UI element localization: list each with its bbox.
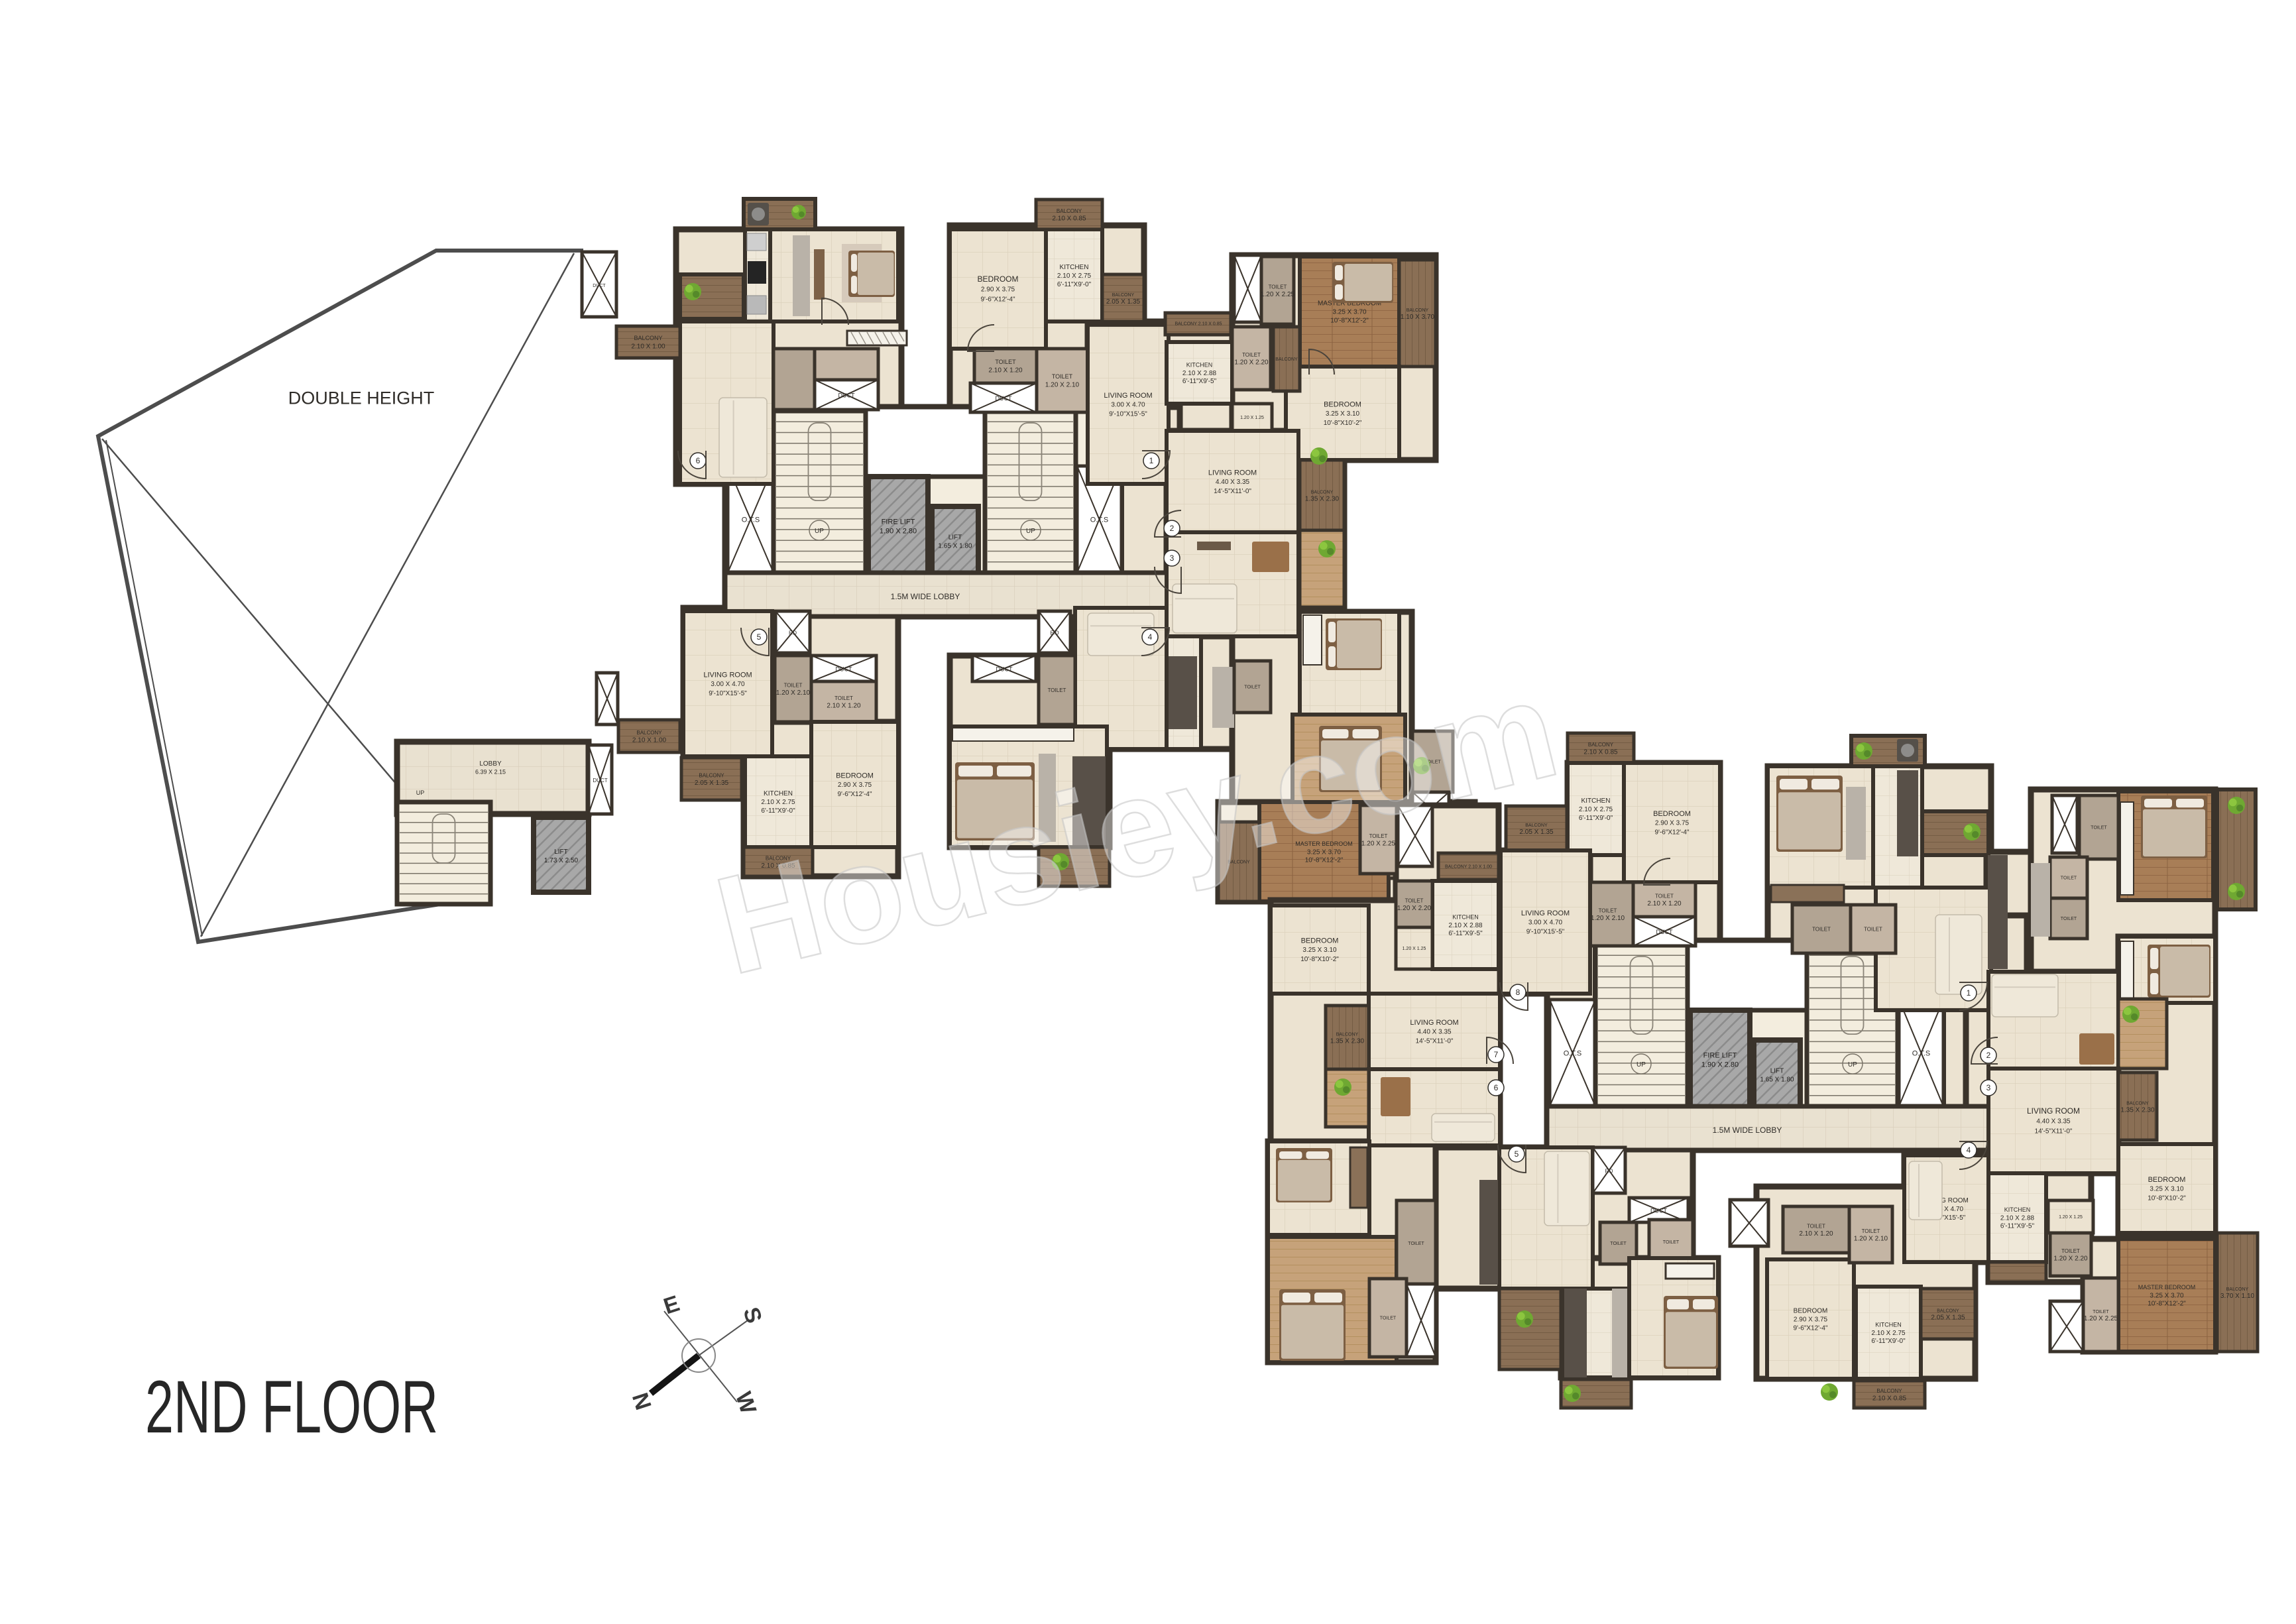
svg-text:14'-5"X11'-0": 14'-5"X11'-0" xyxy=(2035,1128,2073,1135)
svg-text:1.35 X 2.30: 1.35 X 2.30 xyxy=(2120,1107,2155,1114)
svg-text:KITCHEN: KITCHEN xyxy=(1060,264,1089,271)
svg-text:BALCONY: BALCONY xyxy=(1336,1032,1359,1037)
svg-text:LIFT: LIFT xyxy=(554,848,568,856)
svg-text:LIVING ROOM: LIVING ROOM xyxy=(1521,909,1570,917)
svg-text:TOILET: TOILET xyxy=(1380,1316,1397,1320)
svg-text:1.65 X 1.80: 1.65 X 1.80 xyxy=(1760,1076,1794,1084)
svg-text:TOILET: TOILET xyxy=(1862,1228,1880,1234)
svg-text:2.05 X 1.35: 2.05 X 1.35 xyxy=(1106,298,1141,306)
svg-text:TOILET: TOILET xyxy=(1655,893,1674,899)
svg-text:BALCONY: BALCONY xyxy=(1275,357,1298,362)
svg-text:1.20 X 2.25: 1.20 X 2.25 xyxy=(2084,1315,2118,1322)
svg-text:BEDROOM: BEDROOM xyxy=(2148,1176,2186,1184)
svg-text:14'-5"X11'-0": 14'-5"X11'-0" xyxy=(1214,488,1251,495)
svg-text:1.10 X 3.70: 1.10 X 3.70 xyxy=(1401,314,1435,321)
svg-text:TOILET: TOILET xyxy=(1244,685,1261,689)
svg-text:3.25 X 3.70: 3.25 X 3.70 xyxy=(2150,1293,2184,1300)
svg-text:2.90 X 3.75: 2.90 X 3.75 xyxy=(981,286,1015,294)
svg-text:2.10 X 1.00: 2.10 X 1.00 xyxy=(632,737,667,744)
svg-text:BEDROOM: BEDROOM xyxy=(1301,937,1339,945)
svg-text:BALCONY: BALCONY xyxy=(634,335,662,341)
svg-text:BEDROOM: BEDROOM xyxy=(1324,400,1361,408)
svg-text:BALCONY: BALCONY xyxy=(1525,823,1548,828)
svg-text:4: 4 xyxy=(1148,632,1153,642)
svg-text:2.90 X 3.75: 2.90 X 3.75 xyxy=(1794,1316,1828,1324)
svg-text:TOILET: TOILET xyxy=(1812,926,1831,932)
svg-text:14'-5"X11'-0": 14'-5"X11'-0" xyxy=(1416,1038,1454,1045)
svg-text:FIRE LIFT: FIRE LIFT xyxy=(1703,1052,1737,1060)
svg-text:O.T.S: O.T.S xyxy=(1912,1050,1931,1058)
svg-text:1.20 X 2.20: 1.20 X 2.20 xyxy=(1234,359,1269,367)
svg-text:6'-11"X9'-0": 6'-11"X9'-0" xyxy=(761,807,795,815)
svg-text:BALCONY: BALCONY xyxy=(1057,208,1082,214)
svg-text:TOILET: TOILET xyxy=(1048,687,1066,693)
svg-text:6: 6 xyxy=(696,456,701,465)
svg-text:8: 8 xyxy=(1516,988,1521,997)
svg-text:BALCONY: BALCONY xyxy=(1937,1308,1959,1313)
svg-text:4.40 X 3.35: 4.40 X 3.35 xyxy=(1216,479,1250,486)
svg-text:UP: UP xyxy=(1026,528,1035,535)
svg-text:F.D: F.D xyxy=(789,630,797,636)
svg-text:TOILET: TOILET xyxy=(2061,917,2077,921)
svg-text:DUCT: DUCT xyxy=(836,666,852,673)
svg-text:TOILET: TOILET xyxy=(2061,876,2077,880)
svg-text:7: 7 xyxy=(1494,1050,1499,1059)
svg-text:LIVING ROOM: LIVING ROOM xyxy=(1104,392,1152,400)
svg-text:9'-6"X12'-4": 9'-6"X12'-4" xyxy=(837,791,872,798)
svg-text:1.20 X 2.10: 1.20 X 2.10 xyxy=(776,689,811,697)
svg-text:2.10 X 2.75: 2.10 X 2.75 xyxy=(761,799,795,806)
svg-text:1.20 X 1.25: 1.20 X 1.25 xyxy=(1403,947,1426,951)
svg-text:UP: UP xyxy=(1636,1061,1646,1069)
svg-text:KITCHEN: KITCHEN xyxy=(2004,1206,2031,1213)
svg-text:2.10 X 1.20: 2.10 X 1.20 xyxy=(827,703,861,710)
svg-text:6'-11"X9'-5": 6'-11"X9'-5" xyxy=(1182,378,1217,385)
svg-text:BEDROOM: BEDROOM xyxy=(977,274,1018,284)
svg-text:1.20 X 1.25: 1.20 X 1.25 xyxy=(2059,1215,2083,1220)
svg-text:2: 2 xyxy=(1986,1051,1991,1060)
svg-text:2.10 X 1.20: 2.10 X 1.20 xyxy=(1799,1230,1833,1238)
svg-text:1.5M WIDE LOBBY: 1.5M WIDE LOBBY xyxy=(891,592,960,601)
svg-text:BEDROOM: BEDROOM xyxy=(1794,1308,1828,1315)
svg-text:6'-11"X9'-5": 6'-11"X9'-5" xyxy=(2000,1223,2035,1230)
svg-text:TOILET: TOILET xyxy=(1610,1242,1627,1246)
svg-text:2.05 X 1.35: 2.05 X 1.35 xyxy=(1931,1314,1965,1322)
svg-text:TOILET: TOILET xyxy=(1052,373,1073,380)
svg-text:3: 3 xyxy=(1170,553,1175,563)
svg-text:KITCHEN: KITCHEN xyxy=(1581,797,1611,805)
svg-text:KITCHEN: KITCHEN xyxy=(764,790,793,797)
svg-text:E.D: E.D xyxy=(1050,630,1059,636)
svg-text:1.35 X 2.30: 1.35 X 2.30 xyxy=(1330,1038,1365,1045)
svg-text:3.25 X 3.10: 3.25 X 3.10 xyxy=(1326,410,1360,418)
svg-text:1.20 X 2.25: 1.20 X 2.25 xyxy=(1261,291,1295,298)
svg-text:1.90 X 2.80: 1.90 X 2.80 xyxy=(1701,1061,1739,1069)
svg-text:KITCHEN: KITCHEN xyxy=(1186,362,1213,369)
svg-text:BALCONY: BALCONY xyxy=(1588,742,1614,748)
svg-text:LIVING ROOM: LIVING ROOM xyxy=(1410,1019,1458,1027)
svg-text:3.70 X 1.10: 3.70 X 1.10 xyxy=(2220,1293,2255,1300)
svg-text:LIVING ROOM: LIVING ROOM xyxy=(1208,469,1257,477)
svg-text:10'-8"X12'-2": 10'-8"X12'-2" xyxy=(2148,1301,2186,1308)
svg-text:5: 5 xyxy=(1515,1149,1519,1159)
svg-text:TOILET: TOILET xyxy=(834,695,853,701)
svg-text:O.T.S: O.T.S xyxy=(742,516,760,524)
svg-text:DUCT: DUCT xyxy=(996,395,1012,402)
svg-text:DUCT: DUCT xyxy=(593,778,607,783)
svg-text:6: 6 xyxy=(1494,1083,1499,1092)
svg-text:KITCHEN: KITCHEN xyxy=(1875,1322,1902,1328)
svg-text:TOILET: TOILET xyxy=(1242,352,1261,358)
svg-text:TOILET: TOILET xyxy=(1408,1242,1424,1246)
svg-text:BALCONY: BALCONY xyxy=(1876,1388,1902,1394)
svg-text:2.10 X 2.88: 2.10 X 2.88 xyxy=(1182,370,1217,377)
svg-text:DUCT: DUCT xyxy=(838,392,855,399)
svg-text:6.39 X 2.15: 6.39 X 2.15 xyxy=(475,769,506,776)
svg-text:2.10 X 1.20: 2.10 X 1.20 xyxy=(988,367,1023,375)
svg-text:1.20 X 2.10: 1.20 X 2.10 xyxy=(1591,915,1625,922)
svg-text:5: 5 xyxy=(757,632,762,642)
svg-text:9'-10"X15'-5": 9'-10"X15'-5" xyxy=(1109,411,1147,418)
svg-text:1: 1 xyxy=(1967,988,1971,998)
svg-text:2.10 X 2.75: 2.10 X 2.75 xyxy=(1579,806,1613,813)
svg-text:UP: UP xyxy=(416,789,425,796)
svg-text:2.10 X 0.85: 2.10 X 0.85 xyxy=(1583,749,1618,756)
svg-text:1.20 X 2.20: 1.20 X 2.20 xyxy=(2053,1255,2088,1263)
svg-text:9'-6"X12'-4": 9'-6"X12'-4" xyxy=(980,296,1015,304)
svg-text:3.25 X 3.10: 3.25 X 3.10 xyxy=(2150,1186,2184,1193)
svg-text:1.20 X 2.10: 1.20 X 2.10 xyxy=(1854,1236,1888,1243)
svg-text:UP: UP xyxy=(1848,1061,1857,1069)
svg-text:1.35 X 2.30: 1.35 X 2.30 xyxy=(1305,496,1340,503)
svg-text:BALCONY: BALCONY xyxy=(1311,490,1334,494)
svg-text:3.25 X 3.70: 3.25 X 3.70 xyxy=(1332,309,1367,316)
svg-text:UP: UP xyxy=(815,528,824,535)
svg-text:1.20 X 1.25: 1.20 X 1.25 xyxy=(1240,416,1264,420)
svg-text:9'-10"X15'-5": 9'-10"X15'-5" xyxy=(709,690,747,697)
svg-text:1.73 X 2.50: 1.73 X 2.50 xyxy=(544,857,579,864)
svg-text:F.D: F.D xyxy=(1605,1169,1613,1175)
svg-text:4.40 X 3.35: 4.40 X 3.35 xyxy=(1417,1029,1452,1036)
svg-text:O.T.S: O.T.S xyxy=(1564,1050,1582,1058)
svg-text:BALCONY: BALCONY xyxy=(699,772,724,778)
svg-text:TOILET: TOILET xyxy=(2093,1310,2109,1314)
svg-text:10'-8"X10'-2": 10'-8"X10'-2" xyxy=(1324,420,1362,427)
svg-text:2.10 X 2.88: 2.10 X 2.88 xyxy=(1448,922,1483,929)
svg-text:BALCONY: BALCONY xyxy=(636,730,662,736)
svg-text:2.90 X 3.75: 2.90 X 3.75 xyxy=(1655,820,1690,827)
svg-text:DUCT: DUCT xyxy=(1656,929,1673,935)
svg-text:1.90 X 2.80: 1.90 X 2.80 xyxy=(880,528,917,536)
svg-text:3: 3 xyxy=(1986,1083,1991,1092)
svg-text:4.40 X 3.35: 4.40 X 3.35 xyxy=(2036,1118,2071,1126)
svg-text:TOILET: TOILET xyxy=(784,682,803,688)
svg-text:BEDROOM: BEDROOM xyxy=(1653,810,1691,818)
svg-text:BEDROOM: BEDROOM xyxy=(836,772,874,780)
svg-text:6'-11"X9'-0": 6'-11"X9'-0" xyxy=(1057,281,1092,288)
svg-text:2.10 X 0.85: 2.10 X 0.85 xyxy=(1052,215,1086,223)
svg-text:3.00 X 4.70: 3.00 X 4.70 xyxy=(711,681,745,688)
svg-text:TOILET: TOILET xyxy=(1405,898,1424,903)
svg-text:3.00 X 4.70: 3.00 X 4.70 xyxy=(1111,402,1145,409)
svg-text:TOILET: TOILET xyxy=(1807,1223,1825,1229)
svg-text:2.10 X 2.88: 2.10 X 2.88 xyxy=(2000,1215,2035,1222)
svg-text:LIVING ROOM: LIVING ROOM xyxy=(2027,1106,2080,1116)
svg-text:2.10 X 2.75: 2.10 X 2.75 xyxy=(1871,1330,1906,1337)
svg-text:3.25 X 3.10: 3.25 X 3.10 xyxy=(1302,947,1337,954)
svg-text:6'-11"X9'-0": 6'-11"X9'-0" xyxy=(1871,1338,1906,1345)
svg-text:3.00 X 4.70: 3.00 X 4.70 xyxy=(1528,919,1563,927)
svg-text:BALCONY: BALCONY xyxy=(2226,1287,2249,1292)
svg-text:2: 2 xyxy=(1170,524,1175,533)
svg-text:KITCHEN: KITCHEN xyxy=(1452,914,1479,921)
svg-text:BALCONY: BALCONY xyxy=(1112,293,1135,298)
svg-text:9'-6"X12'-4": 9'-6"X12'-4" xyxy=(1654,829,1690,837)
svg-text:10'-8"X10'-2": 10'-8"X10'-2" xyxy=(1300,956,1339,963)
svg-text:1.5M WIDE LOBBY: 1.5M WIDE LOBBY xyxy=(1713,1126,1782,1135)
svg-text:2.90 X 3.75: 2.90 X 3.75 xyxy=(838,782,872,789)
svg-text:DOUBLE HEIGHT: DOUBLE HEIGHT xyxy=(288,388,435,408)
svg-text:DUCT: DUCT xyxy=(996,666,1013,673)
svg-text:2.05 X 1.35: 2.05 X 1.35 xyxy=(1519,829,1554,836)
svg-text:BALCONY: BALCONY xyxy=(2126,1101,2149,1106)
svg-text:6'-11"X9'-5": 6'-11"X9'-5" xyxy=(1448,930,1483,937)
svg-text:1.20 X 2.10: 1.20 X 2.10 xyxy=(1045,382,1080,389)
svg-text:10'-8"X12'-2": 10'-8"X12'-2" xyxy=(1330,318,1369,325)
svg-text:FIRE LIFT: FIRE LIFT xyxy=(882,518,915,526)
svg-text:TOILET: TOILET xyxy=(995,359,1016,365)
svg-text:TOILET: TOILET xyxy=(2061,1248,2080,1254)
svg-text:2.10 X 1.20: 2.10 X 1.20 xyxy=(1647,900,1682,907)
svg-text:LOBBY: LOBBY xyxy=(479,760,502,768)
svg-text:LIFT: LIFT xyxy=(1770,1068,1784,1075)
svg-text:10'-8"X10'-2": 10'-8"X10'-2" xyxy=(2148,1195,2186,1202)
svg-text:TOILET: TOILET xyxy=(1864,926,1882,932)
svg-text:9'-10"X15'-5": 9'-10"X15'-5" xyxy=(1526,929,1565,936)
svg-text:O.T.S: O.T.S xyxy=(1090,516,1109,524)
svg-text:DUCT: DUCT xyxy=(1650,1208,1667,1214)
svg-text:DUCT: DUCT xyxy=(593,284,606,288)
svg-text:2.05 X 1.35: 2.05 X 1.35 xyxy=(695,780,729,787)
svg-text:BALCONY: BALCONY xyxy=(1406,308,1429,313)
svg-text:BALCONY 2.10 X 0.85: BALCONY 2.10 X 0.85 xyxy=(1175,321,1222,326)
svg-text:BALCONY 2.10 X 1.00: BALCONY 2.10 X 1.00 xyxy=(1445,864,1492,869)
svg-text:2.10 X 1.00: 2.10 X 1.00 xyxy=(631,343,665,351)
svg-text:1.65 X 1.80: 1.65 X 1.80 xyxy=(938,543,972,550)
svg-text:2.10 X 2.75: 2.10 X 2.75 xyxy=(1057,272,1092,280)
svg-text:1.20 X 2.20: 1.20 X 2.20 xyxy=(1397,905,1432,912)
svg-text:LIFT: LIFT xyxy=(948,534,962,542)
svg-text:TOILET: TOILET xyxy=(1663,1240,1680,1245)
svg-text:9'-6"X12'-4": 9'-6"X12'-4" xyxy=(1793,1325,1828,1332)
svg-text:1: 1 xyxy=(1149,456,1154,465)
svg-text:MASTER BEDROOM: MASTER BEDROOM xyxy=(2138,1284,2196,1291)
svg-text:4: 4 xyxy=(1967,1145,1971,1155)
svg-text:6'-11"X9'-0": 6'-11"X9'-0" xyxy=(1579,815,1613,822)
svg-text:2ND FLOOR: 2ND FLOOR xyxy=(145,1365,438,1448)
svg-text:2.10 X 0.85: 2.10 X 0.85 xyxy=(1872,1395,1907,1403)
svg-text:TOILET: TOILET xyxy=(1269,284,1287,290)
svg-text:LIVING ROOM: LIVING ROOM xyxy=(703,671,752,679)
svg-text:TOILET: TOILET xyxy=(1599,907,1617,913)
svg-text:TOILET: TOILET xyxy=(2091,825,2107,830)
